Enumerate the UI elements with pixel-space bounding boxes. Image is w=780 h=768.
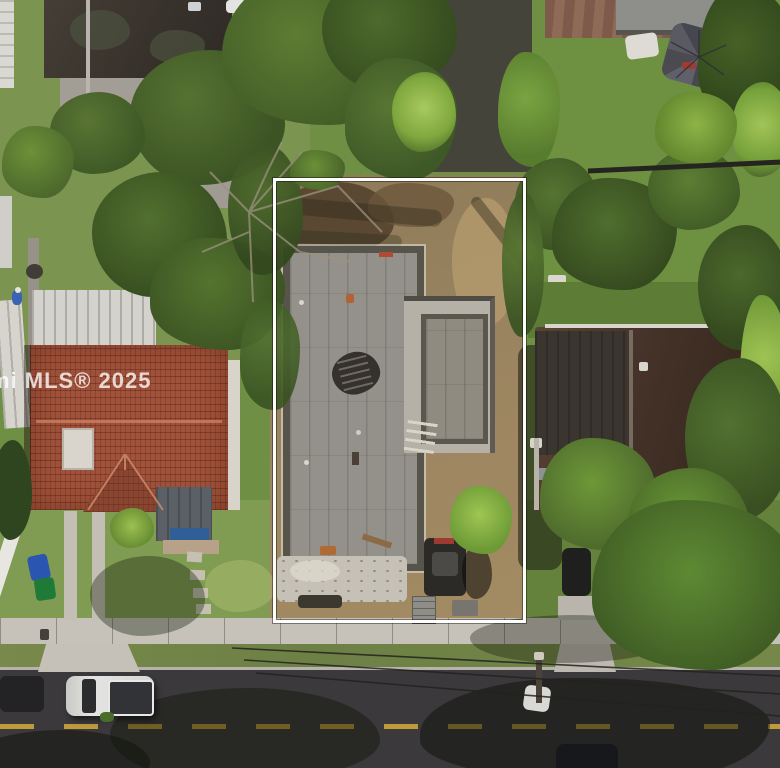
satellite-dish bbox=[26, 264, 43, 279]
red-item bbox=[682, 62, 696, 69]
aerial-photo: mi MLS® 2025 bbox=[0, 0, 780, 768]
property-boundary bbox=[273, 178, 526, 623]
yard-shadow bbox=[90, 556, 205, 636]
roof-ridge-line bbox=[36, 420, 222, 423]
dark-suv-driveway bbox=[562, 548, 591, 596]
person-head bbox=[15, 287, 21, 293]
dark-car-bottom-right bbox=[556, 744, 618, 768]
metal-roof-carport bbox=[32, 290, 156, 350]
chimney-white bbox=[62, 428, 94, 470]
white-wall-right bbox=[228, 360, 240, 510]
pickup-truck bbox=[66, 676, 154, 716]
palm-tree-right bbox=[732, 82, 780, 177]
truck-windshield bbox=[82, 679, 96, 713]
driveway-apron-left bbox=[38, 644, 140, 672]
stepping-stone-1 bbox=[187, 551, 203, 562]
roof-left-wing-gray bbox=[535, 331, 627, 455]
trash-bin-green bbox=[34, 577, 57, 602]
mls-watermark: mi MLS® 2025 bbox=[0, 368, 152, 394]
white-building-sliver-top bbox=[0, 0, 14, 88]
street-tree-canopy bbox=[592, 500, 780, 670]
utility-pole-cap bbox=[534, 652, 544, 660]
dark-car-left bbox=[0, 676, 44, 712]
roof-moss-patch bbox=[70, 10, 130, 50]
tree-canopy bbox=[2, 126, 74, 198]
truck-bed-cover bbox=[108, 680, 154, 716]
driveway-strip-left bbox=[64, 511, 77, 620]
side-pole bbox=[534, 438, 539, 510]
white-building-sliver-mid bbox=[0, 196, 12, 268]
mailbox-dot bbox=[40, 629, 49, 640]
white-boat bbox=[624, 32, 659, 60]
bush-bright bbox=[498, 52, 560, 167]
solar-panel bbox=[170, 528, 209, 540]
palm-tree-right2 bbox=[655, 92, 737, 164]
chimney-dot bbox=[639, 362, 648, 371]
utility-pole bbox=[536, 655, 542, 703]
rooftop-ac-unit bbox=[188, 2, 201, 11]
green-bag bbox=[100, 712, 114, 722]
front-yard-palm bbox=[110, 508, 154, 548]
palm-tree bbox=[392, 72, 456, 152]
sunny-grass-patch bbox=[205, 560, 275, 612]
